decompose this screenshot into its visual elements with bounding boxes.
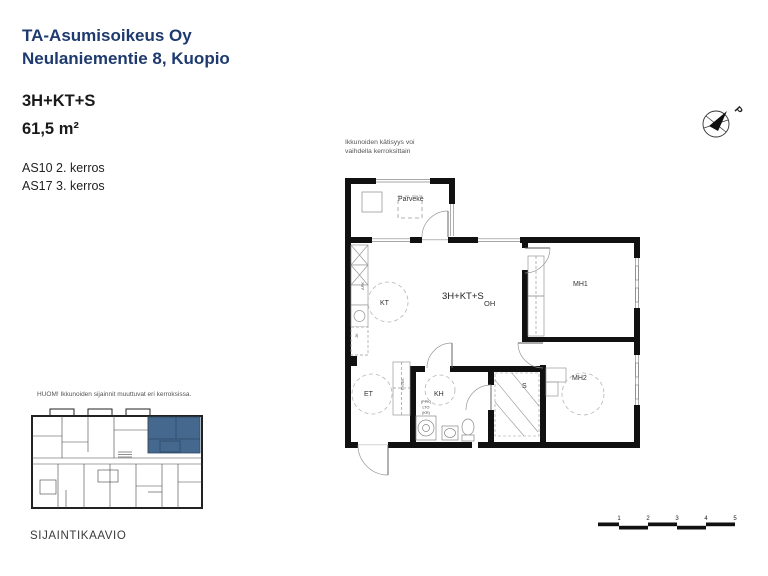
- label-kitchen: KT: [380, 300, 390, 307]
- unit-line-2: AS17 3. kerros: [22, 177, 230, 195]
- label-bedroom2: MH2: [572, 375, 587, 382]
- scale-bar-segments: [598, 523, 735, 530]
- apartment-floor-plan: Parveke KT 3H+KT+S OH MH1 MH2 ET KH S PY…: [336, 170, 646, 485]
- company-name: TA-Asumisoikeus Oy: [22, 24, 230, 47]
- label-apartment-type: 3H+KT+S: [442, 291, 484, 302]
- scale-tick-2: 2: [646, 516, 650, 522]
- window-note-line2: vaihdella kerroksittain: [345, 147, 415, 156]
- bedroom2-closet: [546, 368, 566, 396]
- label-sauna: S: [522, 383, 527, 390]
- sauna-benches: [495, 373, 539, 436]
- apartment-area: 61,5 m²: [22, 120, 230, 139]
- site-plan-note: HUOM! Ikkunoiden sijainnit muuttuvat eri…: [37, 390, 191, 399]
- floor-plan-page: TA-Asumisoikeus Oy Neulaniementie 8, Kuo…: [0, 0, 768, 576]
- label-bedroom1: MH1: [573, 281, 588, 288]
- bedroom1-wardrobe: [528, 256, 544, 336]
- apartment-type: 3H+KT+S: [22, 92, 230, 111]
- scale-bar-labels: 1 2 3 4 5: [617, 516, 737, 522]
- north-arrow-icon: P: [696, 96, 748, 148]
- site-plan-drawing: [28, 400, 210, 526]
- label-living-room: OH: [484, 299, 495, 308]
- unit-line-1: AS10 2. kerros: [22, 159, 230, 177]
- site-plan-title: SIJAINTIKAAVIO: [30, 530, 126, 542]
- walls: [345, 178, 640, 448]
- scale-tick-3: 3: [675, 516, 679, 522]
- street-address: Neulaniementie 8, Kuopio: [22, 47, 230, 70]
- scale-bar: 1 2 3 4 5: [598, 512, 748, 536]
- windows: [358, 180, 639, 445]
- north-label: P: [732, 105, 745, 118]
- window-note-line1: Ikkunoiden kätisyys voi: [345, 138, 415, 147]
- highlighted-unit: [148, 417, 200, 453]
- header-block: TA-Asumisoikeus Oy Neulaniementie 8, Kuo…: [22, 24, 230, 195]
- label-bathroom: KH: [434, 391, 444, 398]
- label-dishwasher: APK: [360, 282, 365, 290]
- label-utility-closet: PY/EK: [400, 378, 405, 390]
- label-appliance-kr: (KR): [422, 411, 431, 415]
- window-note: Ikkunoiden kätisyys voi vaihdella kerrok…: [345, 138, 415, 156]
- scale-tick-5: 5: [733, 516, 737, 522]
- label-appliance-lto: LTO: [422, 406, 429, 410]
- scale-tick-4: 4: [704, 516, 708, 522]
- label-balcony: Parveke: [398, 196, 424, 203]
- label-fridge: JK: [354, 333, 359, 338]
- bathroom-fixtures: [416, 416, 474, 441]
- label-appliance-ppk: (PPK): [421, 400, 432, 404]
- label-hall: ET: [364, 391, 374, 398]
- scale-tick-1: 1: [617, 516, 621, 522]
